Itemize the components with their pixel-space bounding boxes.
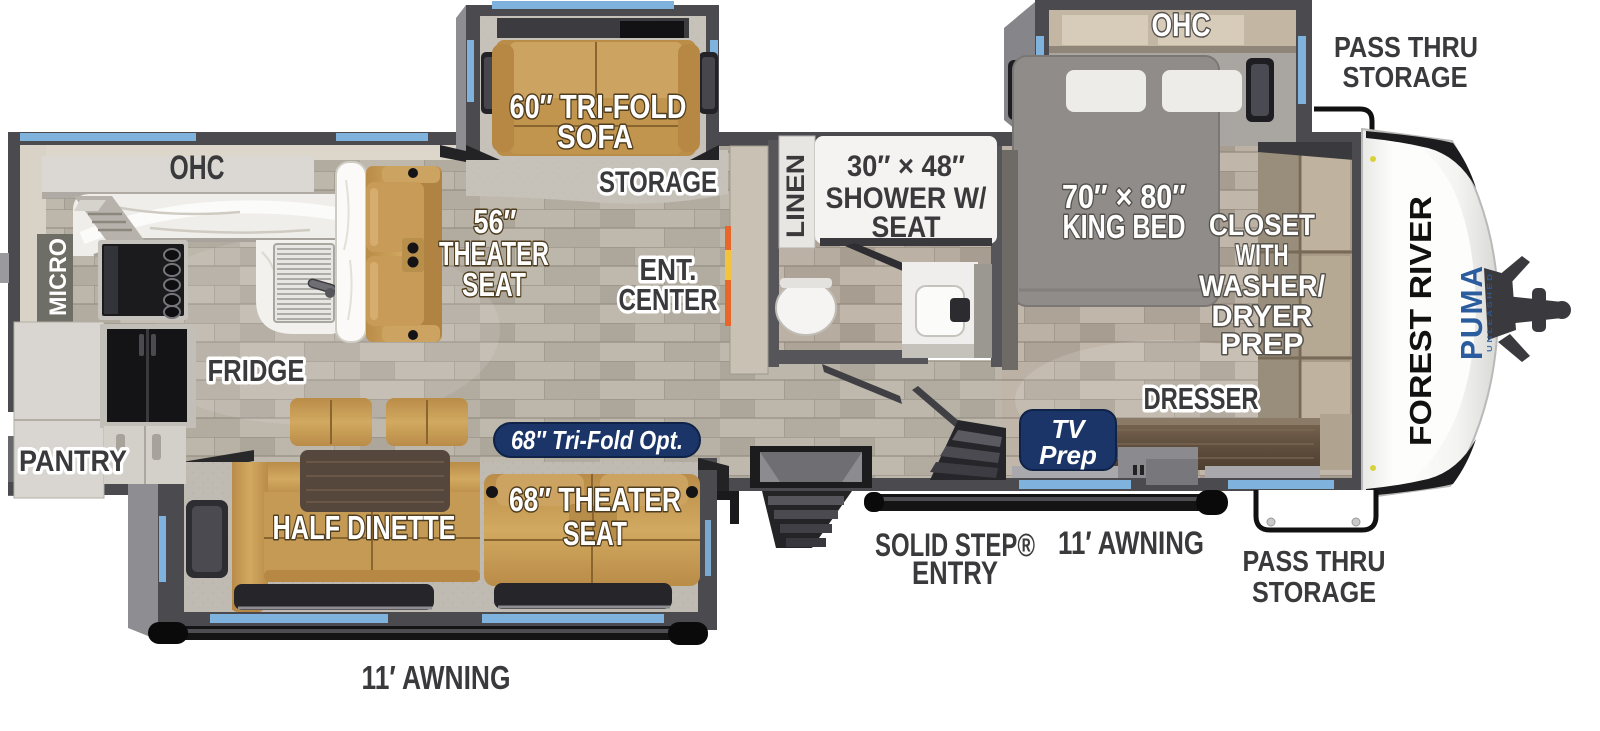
svg-text:STORAGE: STORAGE — [599, 166, 717, 199]
svg-text:STORAGE: STORAGE — [1343, 62, 1468, 94]
svg-text:30″ × 48″: 30″ × 48″ — [847, 150, 965, 183]
svg-text:PUMA: PUMA — [1454, 264, 1489, 360]
svg-text:STORAGE: STORAGE — [1252, 577, 1376, 609]
svg-text:FRIDGE: FRIDGE — [208, 353, 305, 388]
svg-text:Prep: Prep — [1039, 440, 1097, 470]
svg-text:OHC: OHC — [170, 149, 225, 187]
svg-text:11′ AWNING: 11′ AWNING — [1058, 525, 1204, 561]
svg-text:KING BED: KING BED — [1063, 208, 1186, 245]
svg-text:PREP: PREP — [1221, 328, 1304, 361]
svg-text:DRESSER: DRESSER — [1144, 381, 1259, 416]
svg-text:CLOSET: CLOSET — [1209, 209, 1315, 242]
svg-text:OHC: OHC — [1152, 7, 1211, 43]
svg-text:ENTRY: ENTRY — [912, 555, 998, 591]
svg-text:SOFA: SOFA — [557, 118, 633, 155]
svg-text:WITH: WITH — [1236, 239, 1289, 272]
svg-text:MICRO: MICRO — [45, 238, 72, 316]
svg-text:FOREST RIVER: FOREST RIVER — [1403, 196, 1438, 446]
svg-text:PANTRY: PANTRY — [19, 445, 127, 478]
svg-text:11′ AWNING: 11′ AWNING — [362, 659, 511, 696]
svg-text:WASHER/: WASHER/ — [1199, 270, 1326, 303]
svg-text:CENTER: CENTER — [619, 282, 718, 317]
svg-text:SEAT: SEAT — [872, 211, 941, 244]
svg-text:68″ Tri-Fold Opt.: 68″ Tri-Fold Opt. — [511, 425, 683, 455]
svg-text:PASS THRU: PASS THRU — [1243, 546, 1386, 578]
svg-text:HALF DINETTE: HALF DINETTE — [273, 509, 456, 546]
svg-text:SEAT: SEAT — [462, 266, 526, 303]
svg-text:PASS THRU: PASS THRU — [1334, 32, 1478, 64]
svg-text:LINEN: LINEN — [782, 154, 810, 238]
svg-text:SEAT: SEAT — [563, 515, 627, 552]
svg-text:68″ THEATER: 68″ THEATER — [509, 481, 681, 518]
svg-text:U N L E A S H E D: U N L E A S H E D — [1487, 274, 1494, 352]
